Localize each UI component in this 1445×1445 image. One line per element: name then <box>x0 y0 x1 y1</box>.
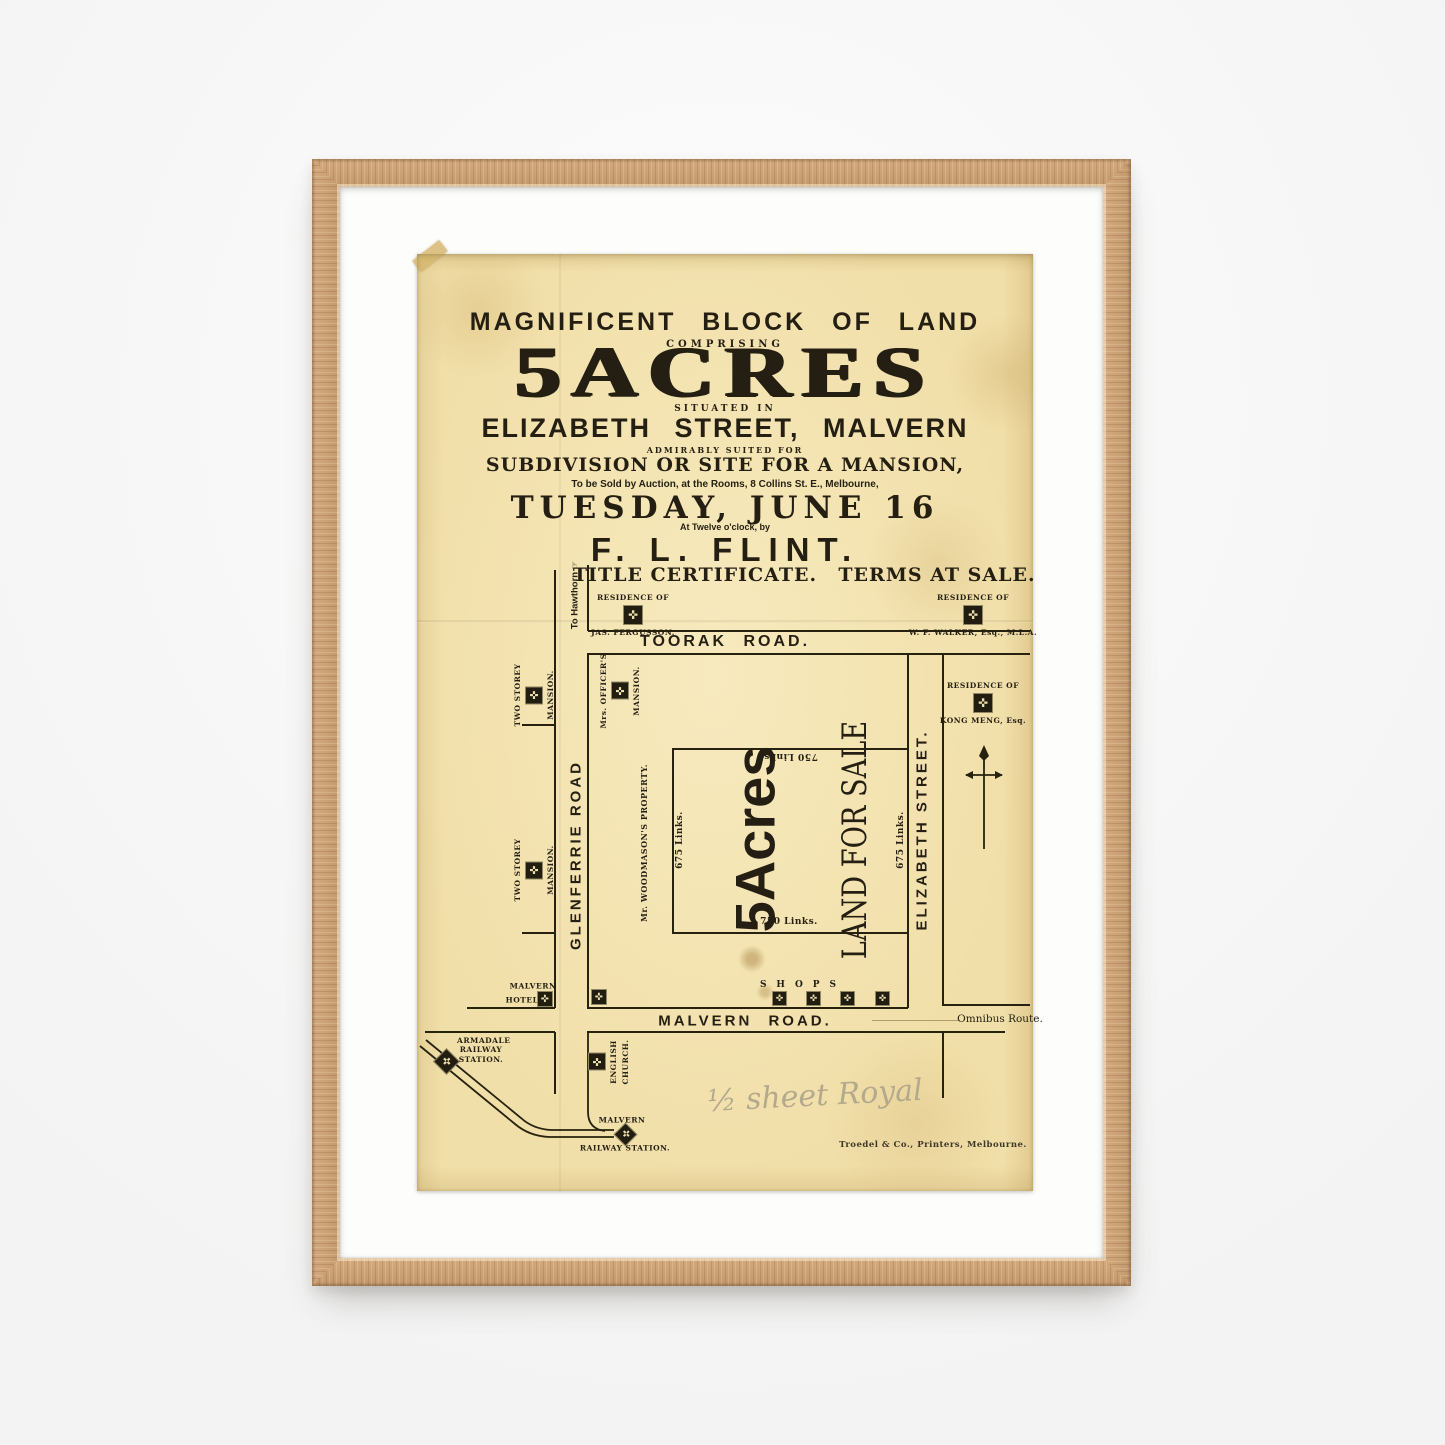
church-line2: CHURCH. <box>621 1040 630 1085</box>
headline-title-certificate: TITLE CERTIFICATE. <box>573 564 817 586</box>
corner-building-icon <box>591 989 607 1005</box>
toorak-road-label: TOORAK ROAD. <box>640 633 810 651</box>
shops-label: SHOPS <box>750 980 846 990</box>
church-building-icon <box>588 1053 606 1071</box>
pointing-hand-icon: ☞ <box>570 561 581 570</box>
mansion-text: MANSION. <box>632 666 641 715</box>
woodmason-property-label: Mr. WOODMASON'S PROPERTY. <box>639 764 649 922</box>
headline-auction-details: To be Sold by Auction, at the Rooms, 8 C… <box>417 479 1033 490</box>
hotel-building-icon <box>537 991 553 1007</box>
omnibus-route-label: Omnibus Route. <box>957 1013 1043 1025</box>
toorak-road-south-line <box>588 653 1030 655</box>
printer-credit: Troedel & Co., Printers, Melbourne. <box>839 1140 1027 1150</box>
mrs-officers-mansion: Mrs. OFFICER'S MANSION. <box>599 653 641 728</box>
glenferrie-road-label: GLENFERRIE ROAD <box>568 760 585 950</box>
malvern-hotel-line2: HOTEL <box>506 996 539 1005</box>
north-compass-icon <box>964 745 1004 855</box>
shop-building-icon <box>875 991 890 1006</box>
headline-date: TUESDAY, JUNE 16 <box>417 490 1033 526</box>
lot-boundary-tick-lower <box>522 932 554 934</box>
elizabeth-street-east-line-south <box>942 1032 944 1098</box>
malvern-road-label: MALVERN ROAD. <box>658 1013 832 1030</box>
two-storey-mansion-lower: TWO STOREY MANSION. <box>513 839 555 902</box>
frame-rail-left <box>312 159 340 1286</box>
shop-building-icon <box>806 991 821 1006</box>
residence-building-icon <box>963 605 983 625</box>
kong-meng-name: KONG MENG, Esq. <box>940 716 1026 725</box>
malvern-road-north-line-east <box>942 1004 1030 1006</box>
armadale-station-label: ARMADALE RAILWAY STATION. <box>457 1036 505 1064</box>
residence-of-label: RESIDENCE OF <box>937 593 1009 602</box>
headline-terms: TERMS AT SALE. <box>838 564 1035 586</box>
land-for-sale-label: LAND FOR SALE <box>835 721 875 959</box>
walker-name: W. F. WALKER, Esq., M.L.A. <box>909 628 1037 637</box>
residence-fergusson: RESIDENCE OF JAS. FERGUSSON. <box>567 593 699 637</box>
two-storey-text: TWO STOREY <box>513 664 522 727</box>
mansion-building-icon <box>525 861 543 879</box>
mansion-building-icon <box>525 686 543 704</box>
residence-kong-meng: RESIDENCE OF KONG MENG, Esq. <box>913 681 1053 725</box>
residence-of-label: RESIDENCE OF <box>947 681 1019 690</box>
residence-building-icon <box>623 605 643 625</box>
wall: MAGNIFICENT BLOCK OF LAND COMPRISING 5AC… <box>0 0 1445 1445</box>
armadale-line1: ARMADALE <box>457 1036 505 1045</box>
armadale-line3: STATION. <box>457 1055 505 1064</box>
frame-rail-top <box>312 159 1131 187</box>
malvern-station-line1: MALVERN <box>599 1116 646 1125</box>
residence-building-icon <box>973 693 993 713</box>
church-line1: ENGLISH <box>609 1040 618 1084</box>
frame-rail-right <box>1103 159 1131 1286</box>
shop-building-icon <box>840 991 855 1006</box>
two-storey-text: TWO STOREY <box>513 839 522 902</box>
residence-of-label: RESIDENCE OF <box>597 593 669 602</box>
pencil-handwriting: ½ sheet Royal <box>706 1073 923 1119</box>
malvern-station-line2: RAILWAY STATION. <box>580 1144 670 1153</box>
headline-acres: 5ACRES <box>331 340 1119 405</box>
shop-building-icon <box>772 991 787 1006</box>
headline-subdivision: SUBDIVISION OR SITE FOR A MANSION, <box>417 454 1033 476</box>
auction-poster: MAGNIFICENT BLOCK OF LAND COMPRISING 5AC… <box>417 254 1033 1191</box>
malvern-road-north-line-center <box>587 1007 908 1009</box>
headline-street: ELIZABETH STREET, MALVERN <box>417 413 1033 444</box>
mansion-text: MANSION. <box>546 670 555 719</box>
glenferrie-road-east-line <box>587 653 589 1008</box>
english-church: ENGLISH CHURCH. <box>588 1040 630 1085</box>
malvern-hotel-line1: MALVERN <box>510 982 557 991</box>
links-675-left: 675 Links. <box>675 811 685 869</box>
mansion-building-icon <box>611 682 629 700</box>
links-750-bottom: 750 Links. <box>760 917 818 927</box>
plot-acres-label: 5Acres <box>723 746 788 933</box>
omnibus-route-line <box>872 1020 960 1021</box>
mrs-officers-text: Mrs. OFFICER'S <box>599 653 608 728</box>
elizabeth-street-label: ELIZABETH STREET. <box>914 729 931 930</box>
mansion-text: MANSION. <box>546 845 555 894</box>
links-675-right: 675 Links. <box>896 811 906 869</box>
frame-rail-bottom <box>312 1258 1131 1286</box>
two-storey-mansion-upper: TWO STOREY MANSION. <box>513 664 555 727</box>
residence-walker: RESIDENCE OF W. F. WALKER, Esq., M.L.A. <box>897 593 1049 637</box>
glenferrie-road-west-line <box>554 570 556 1008</box>
malvern-road-south-line-east <box>587 1031 1005 1033</box>
armadale-line2: RAILWAY <box>457 1045 505 1054</box>
malvern-road-north-line-west <box>467 1007 555 1009</box>
